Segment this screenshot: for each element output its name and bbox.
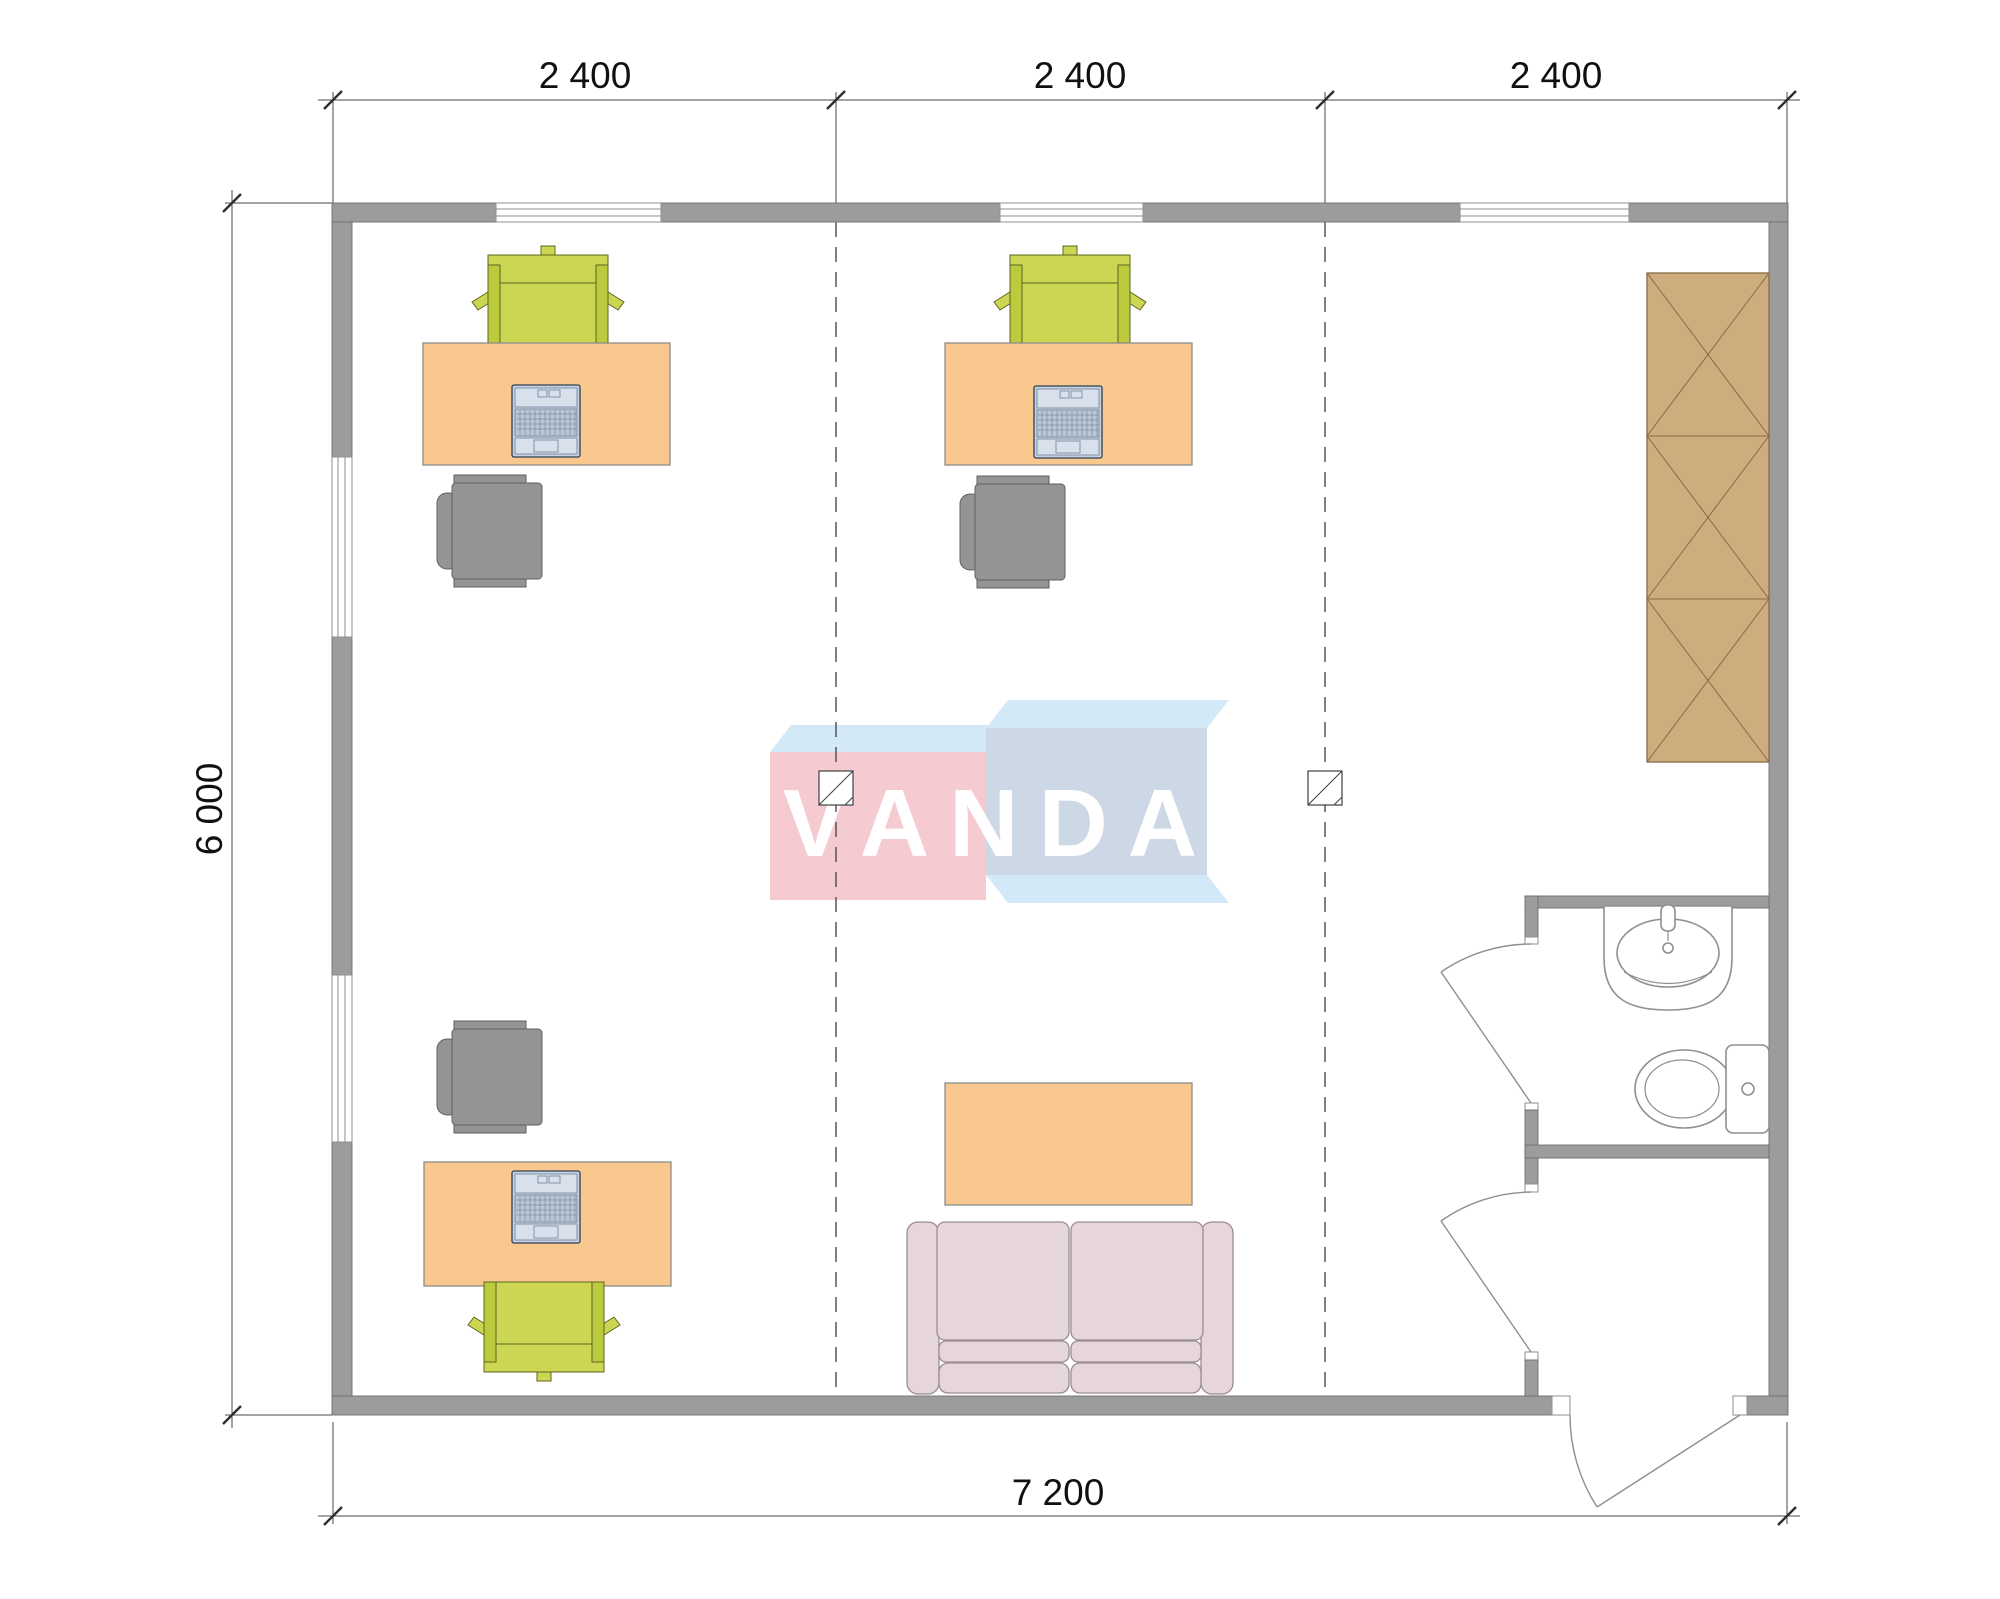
sofa-front-right-1	[1071, 1341, 1201, 1362]
wash-basin	[1604, 905, 1732, 1010]
wall-right	[1769, 222, 1788, 1396]
sofa-armrest-right	[1201, 1222, 1233, 1394]
visitor-chair	[437, 1021, 542, 1133]
door-jamb	[1525, 1103, 1538, 1110]
entrance-opening	[1552, 1395, 1747, 1416]
jamb-left	[1552, 1396, 1570, 1415]
laptop	[1034, 386, 1102, 458]
window-left-1	[332, 457, 352, 637]
sofa-front-right-2	[1071, 1363, 1201, 1393]
laptop	[512, 1171, 580, 1243]
logo-box-left-top-face	[770, 725, 1008, 752]
dim-label-bottom: 7 200	[1012, 1472, 1105, 1513]
task-chair	[994, 246, 1146, 345]
dim-label-top-1: 2 400	[539, 55, 632, 96]
window-frame	[1000, 209, 1143, 216]
window-top-2	[1000, 203, 1143, 222]
window-frame	[496, 209, 661, 216]
window-frame	[338, 975, 345, 1142]
visitor-chair	[960, 476, 1065, 588]
wall-left	[332, 222, 352, 1396]
opening-gap	[1552, 1395, 1747, 1416]
coffee-table	[945, 1083, 1192, 1205]
task-chair	[472, 246, 624, 345]
task-chair-shape	[468, 1282, 620, 1381]
sofa-front-left-2	[939, 1363, 1069, 1393]
sofa-cushion-left	[937, 1222, 1069, 1340]
partition-stub-d	[1525, 1360, 1538, 1396]
sofa-front-left-1	[939, 1341, 1069, 1362]
partition-stub-a	[1525, 896, 1538, 937]
partition-stub-c	[1525, 1158, 1538, 1184]
sofa-cushion-right	[1071, 1222, 1203, 1340]
logo-box-right-bottom-face	[986, 875, 1229, 903]
floor-plan-canvas: 2 400 2 400 2 400 6 000 7 200 VANDA	[0, 0, 2000, 1599]
door-jamb	[1525, 937, 1538, 944]
toilet	[1635, 1045, 1769, 1133]
visitor-chair	[437, 475, 542, 587]
window-left-2	[332, 975, 352, 1142]
logo-box-right-top-face	[986, 700, 1229, 728]
door-jamb	[1525, 1184, 1538, 1192]
faucet	[1661, 905, 1675, 931]
window-frame	[338, 457, 345, 637]
window-top-1	[496, 203, 661, 222]
door-jamb	[1525, 1352, 1538, 1360]
dim-label-top-2: 2 400	[1034, 55, 1127, 96]
jamb-right	[1733, 1396, 1747, 1415]
bathroom-wall-mid	[1525, 1145, 1769, 1158]
drain	[1663, 943, 1673, 953]
grid-marker-1	[819, 771, 853, 805]
laptop	[512, 385, 580, 457]
grid-marker-2	[1308, 771, 1342, 805]
dim-label-top-3: 2 400	[1510, 55, 1603, 96]
task-chair	[468, 1282, 620, 1381]
sofa-armrest-left	[907, 1222, 939, 1394]
window-frame	[1460, 209, 1629, 216]
dim-label-left: 6 000	[189, 763, 230, 856]
floor-plan-drawing: 2 400 2 400 2 400 6 000 7 200 VANDA	[0, 0, 2000, 1599]
flush-button	[1742, 1083, 1754, 1095]
toilet-bowl	[1635, 1050, 1733, 1128]
wardrobe	[1647, 273, 1769, 762]
window-top-3	[1460, 203, 1629, 222]
